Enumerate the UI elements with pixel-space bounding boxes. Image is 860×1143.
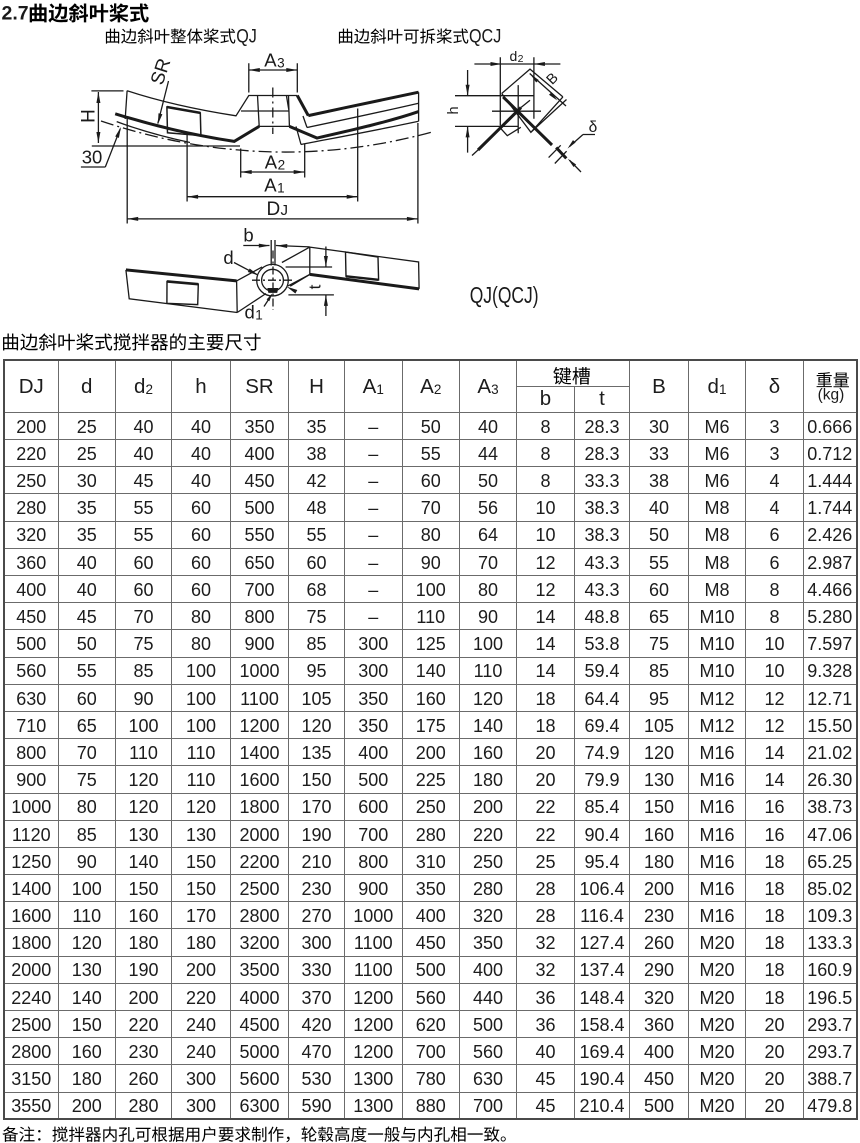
svg-text:D: D	[267, 199, 281, 220]
svg-text:2: 2	[278, 158, 286, 173]
svg-text:SR: SR	[147, 56, 175, 88]
svg-text:30: 30	[82, 147, 103, 168]
svg-text:t: t	[306, 284, 325, 289]
svg-text:1: 1	[277, 181, 285, 196]
svg-text:QJ(QCJ): QJ(QCJ)	[470, 284, 539, 309]
svg-text:H: H	[79, 109, 100, 123]
svg-text:QJ: QJ	[236, 25, 257, 47]
svg-text:2.7: 2.7	[2, 3, 29, 25]
svg-text:d: d	[510, 48, 518, 64]
svg-text:A: A	[264, 175, 277, 196]
svg-text:δ: δ	[589, 119, 598, 136]
svg-text:QCJ: QCJ	[469, 25, 501, 47]
svg-text:h: h	[446, 106, 462, 114]
svg-text:b: b	[243, 225, 253, 246]
svg-text:1: 1	[255, 308, 263, 323]
svg-text:A: A	[264, 50, 277, 71]
svg-text:A: A	[265, 152, 278, 173]
svg-text:d: d	[223, 247, 233, 268]
svg-text:(kg): (kg)	[818, 387, 845, 404]
svg-text:2: 2	[518, 53, 524, 65]
svg-text:B: B	[544, 70, 562, 88]
svg-text:d: d	[245, 302, 255, 323]
svg-text:3: 3	[277, 56, 285, 71]
svg-text:J: J	[281, 202, 289, 219]
